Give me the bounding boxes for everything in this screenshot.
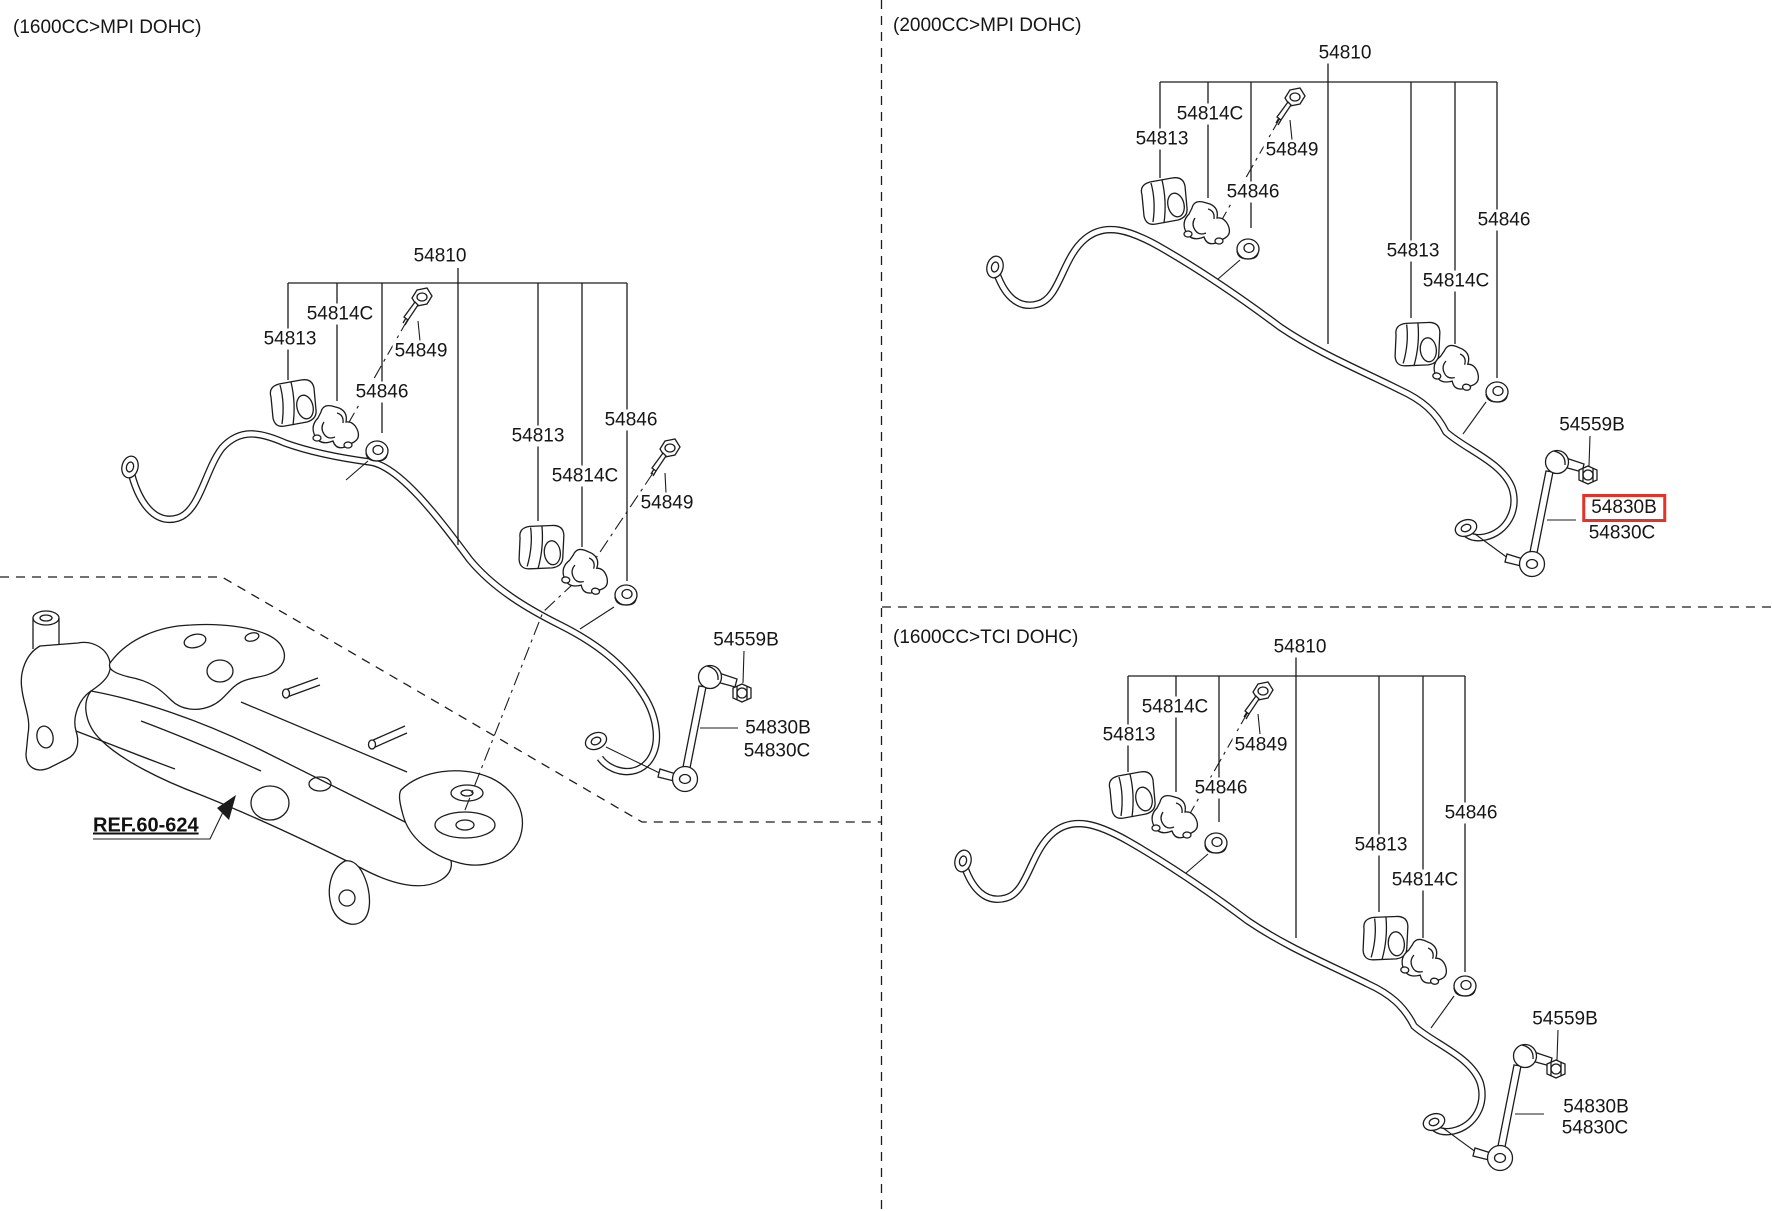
- part-label-54814c[interactable]: 54814C: [1421, 271, 1492, 292]
- part-label-54846[interactable]: 54846: [1476, 210, 1533, 231]
- bolt-54849-drawing: [651, 439, 680, 476]
- part-label-54849[interactable]: 54849: [1233, 735, 1290, 756]
- part-label-54846[interactable]: 54846: [1443, 803, 1500, 824]
- part-label-54813[interactable]: 54813: [1353, 835, 1410, 856]
- collar-54846-drawing: [615, 585, 637, 605]
- highlighted-part-label-54830b[interactable]: 54830B: [1582, 494, 1666, 522]
- part-label-54810[interactable]: 54810: [1317, 43, 1374, 64]
- part-label-54813[interactable]: 54813: [262, 329, 319, 350]
- part-label-54814c[interactable]: 54814C: [305, 304, 376, 325]
- section-title-1600-tci: (1600CC>TCI DOHC): [893, 627, 1078, 649]
- part-label-54814c[interactable]: 54814C: [1175, 104, 1246, 125]
- part-label-54846[interactable]: 54846: [1225, 182, 1282, 203]
- bolt-54849-drawing: [403, 288, 432, 325]
- part-label-54849[interactable]: 54849: [1264, 140, 1321, 161]
- part-label-54830c[interactable]: 54830C: [1587, 523, 1658, 544]
- part-label-54830c[interactable]: 54830C: [1560, 1118, 1631, 1139]
- diagram-canvas: [0, 0, 1772, 1211]
- part-label-54813[interactable]: 54813: [1134, 129, 1191, 150]
- section-title-2000-mpi: (2000CC>MPI DOHC): [893, 15, 1081, 37]
- part-label-54830b[interactable]: 54830B: [1561, 1097, 1631, 1118]
- part-label-54846[interactable]: 54846: [354, 382, 411, 403]
- part-label-54846[interactable]: 54846: [603, 410, 660, 431]
- bushing-54813-drawing: [515, 521, 567, 574]
- part-label-54559b[interactable]: 54559B: [1557, 415, 1627, 436]
- part-label-54813[interactable]: 54813: [1101, 725, 1158, 746]
- nut-54559b-drawing: [733, 684, 751, 702]
- part-label-54814c[interactable]: 54814C: [550, 466, 621, 487]
- section-title-1600-mpi: (1600CC>MPI DOHC): [13, 17, 201, 39]
- part-label-54846[interactable]: 54846: [1193, 778, 1250, 799]
- part-label-54559b[interactable]: 54559B: [1530, 1009, 1600, 1030]
- part-label-54849[interactable]: 54849: [393, 341, 450, 362]
- ref-link-60-624[interactable]: REF.60-624: [93, 815, 199, 838]
- part-label-54559b[interactable]: 54559B: [711, 630, 781, 651]
- bracket-54814c-drawing: [313, 406, 358, 448]
- part-label-54810[interactable]: 54810: [412, 246, 469, 267]
- collar-54846-drawing: [366, 441, 388, 461]
- bushing-54813-drawing: [270, 380, 316, 427]
- parts-diagram-page: (1600CC>MPI DOHC) (2000CC>MPI DOHC) (160…: [0, 0, 1772, 1211]
- subframe-drawing: [21, 611, 522, 924]
- part-label-54849[interactable]: 54849: [639, 493, 696, 514]
- bar-end-eyelet: [583, 729, 610, 753]
- part-label-54814c[interactable]: 54814C: [1140, 697, 1211, 718]
- part-label-54814c[interactable]: 54814C: [1390, 870, 1461, 891]
- part-label-54813[interactable]: 54813: [510, 426, 567, 447]
- part-label-54810[interactable]: 54810: [1272, 637, 1329, 658]
- bar-end-eyelet: [120, 454, 141, 479]
- part-label-54813[interactable]: 54813: [1385, 241, 1442, 262]
- part-label-54830b[interactable]: 54830B: [743, 718, 813, 739]
- part-label-54830c[interactable]: 54830C: [742, 741, 813, 762]
